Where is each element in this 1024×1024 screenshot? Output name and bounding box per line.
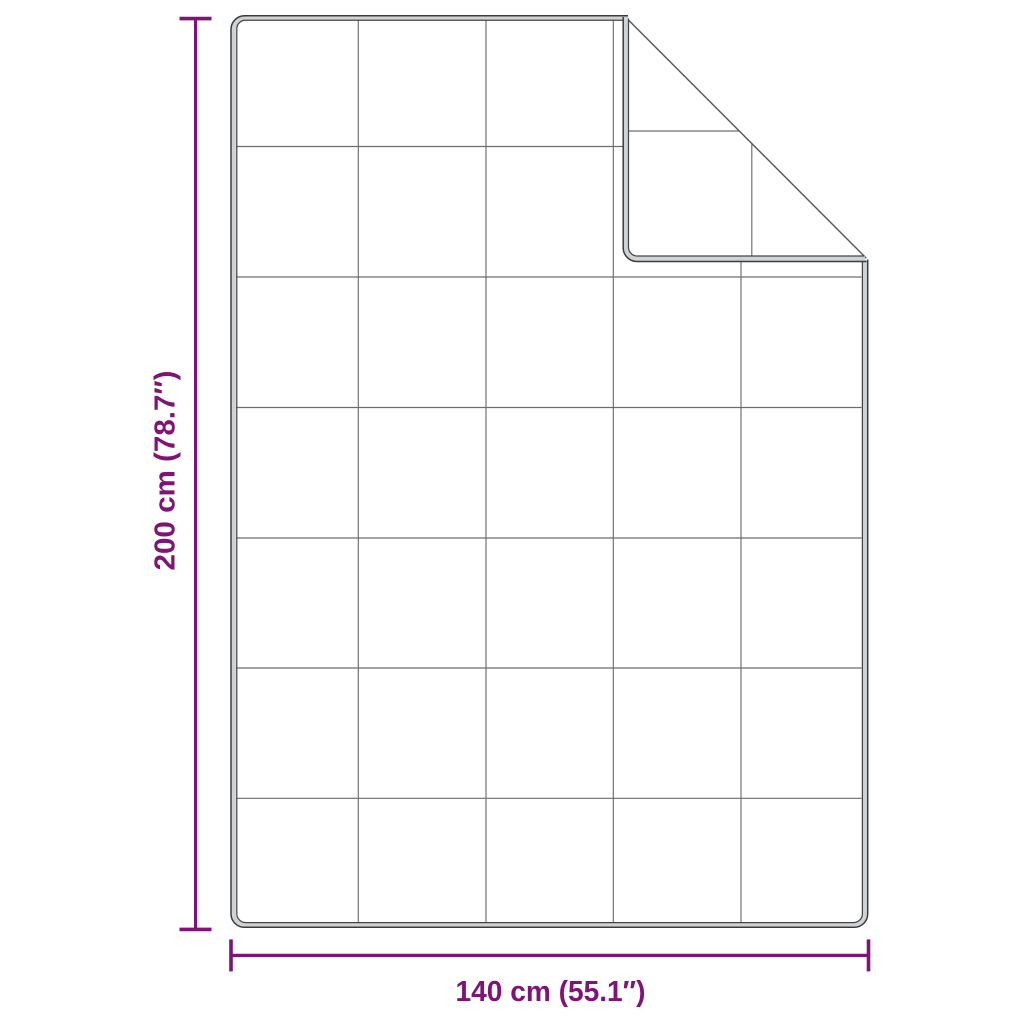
svg-text:140 cm (55.1″): 140 cm (55.1″) — [456, 976, 646, 1008]
svg-text:200 cm (78.7″): 200 cm (78.7″) — [149, 371, 181, 571]
